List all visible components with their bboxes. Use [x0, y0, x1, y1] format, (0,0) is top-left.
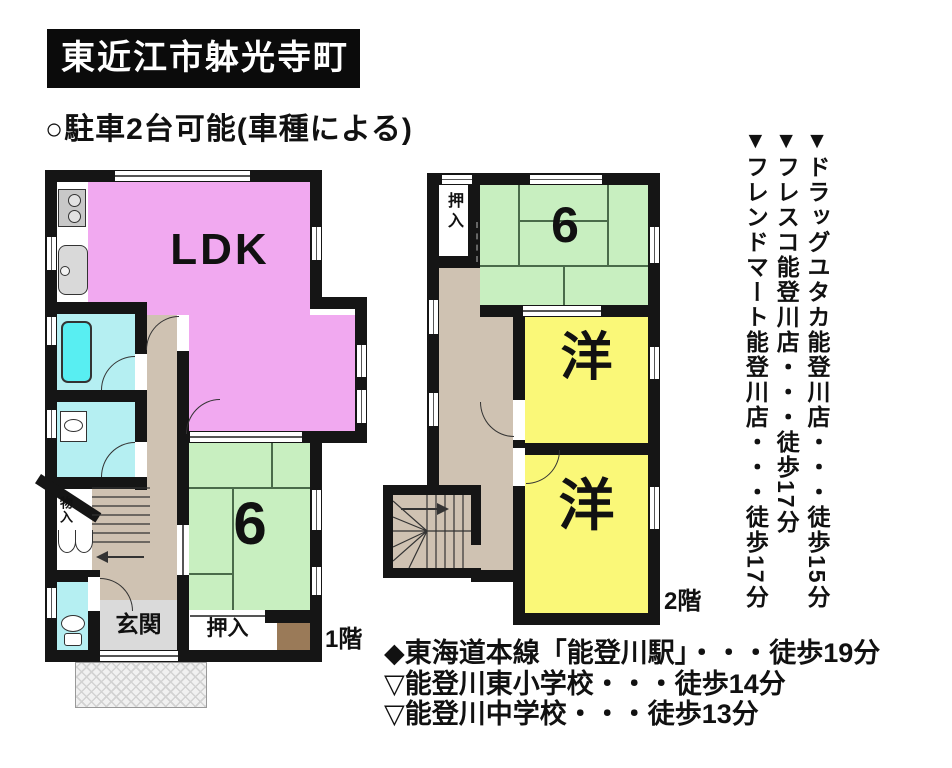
sliding-door	[177, 525, 189, 575]
ldk-label: LDK	[140, 228, 300, 272]
window	[312, 567, 321, 595]
wall	[471, 485, 481, 545]
stairs-1f	[92, 479, 150, 571]
tatami-line	[271, 443, 273, 487]
wall	[310, 431, 322, 662]
wall	[383, 485, 481, 495]
bathtub-icon	[61, 321, 92, 383]
floor1-label: 1階	[325, 628, 362, 652]
closet-opening	[476, 222, 480, 262]
access-info-line: ▽能登川中学校・・・徒歩13分	[384, 699, 880, 730]
nearby-store-item: ▼フレスコ能登川店・・・徒歩17分	[770, 127, 801, 632]
tatami-line	[563, 265, 565, 305]
hallway-2f-top	[439, 268, 480, 317]
wall	[427, 256, 480, 268]
folding-door-arc	[58, 530, 76, 553]
parking-note: ○駐車2台可能(車種による)	[45, 104, 413, 148]
window	[115, 171, 250, 181]
access-info-list: ◆東海道本線「能登川駅」・・・徒歩19分 ▽能登川東小学校・・・徒歩14分 ▽能…	[384, 638, 880, 730]
wall	[45, 390, 145, 402]
wall	[513, 613, 660, 625]
alcove-brown	[277, 621, 310, 652]
vanity-bowl-icon	[64, 419, 83, 432]
toilet-icon	[61, 615, 85, 632]
door-gap	[135, 442, 147, 477]
western-room-label: 洋	[525, 332, 648, 384]
door-gap	[513, 448, 525, 486]
stairs-2f	[393, 495, 471, 568]
sliding-door	[523, 306, 601, 316]
door-gap	[513, 400, 525, 440]
wall	[177, 600, 189, 662]
tatami-line	[607, 185, 609, 265]
window	[650, 347, 659, 379]
window	[530, 175, 602, 184]
window	[312, 227, 321, 260]
window	[442, 175, 472, 184]
window	[47, 588, 56, 618]
property-title: 東近江市躰光寺町	[61, 39, 349, 77]
window	[47, 410, 56, 438]
floor2-label: 2階	[664, 590, 701, 614]
window	[650, 227, 659, 263]
oshiire-label: 押入	[445, 192, 461, 232]
access-info-line: ◆東海道本線「能登川駅」・・・徒歩19分	[384, 638, 880, 669]
entrance-label: 玄関	[100, 613, 177, 636]
toilet-tank-icon	[64, 633, 82, 646]
nearby-store-item: ▼フレンドマート能登川店・・・徒歩17分	[740, 127, 771, 632]
stove-burner-icon	[68, 210, 81, 223]
tatami-size-label: 6	[200, 494, 300, 554]
faucet-icon	[60, 266, 70, 276]
folding-door-arc	[75, 530, 93, 553]
stairs-arrow-icon	[96, 551, 108, 563]
window	[47, 317, 56, 345]
wall	[265, 610, 322, 623]
entrance-door	[100, 651, 178, 661]
property-title-banner: 東近江市躰光寺町	[47, 29, 360, 88]
window	[312, 490, 321, 530]
wall	[45, 302, 145, 314]
tatami-line	[518, 185, 520, 265]
western-room-label: 洋	[525, 478, 648, 534]
nearby-store-item: ▼ドラッグユタカ能登川店・・・徒歩15分	[801, 127, 832, 632]
window	[429, 393, 438, 426]
floorplan-flyer: 東近江市躰光寺町 ○駐車2台可能(車種による)	[0, 0, 952, 768]
wall	[383, 568, 481, 578]
oshiire-label: 押入	[190, 618, 265, 639]
tatami-line	[189, 487, 310, 489]
entrance-porch	[75, 662, 207, 708]
nearby-stores-list: ▼ドラッグユタカ能登川店・・・徒歩15分 ▼フレスコ能登川店・・・徒歩17分 ▼…	[712, 127, 832, 632]
door-gap	[88, 577, 100, 611]
tatami-size-label: 6	[530, 200, 600, 250]
access-info-line: ▽能登川東小学校・・・徒歩14分	[384, 669, 880, 700]
stairs-arrow-icon	[437, 503, 449, 515]
window	[47, 237, 56, 270]
tatami-line	[189, 573, 232, 575]
stove-burner-icon	[68, 194, 81, 207]
door-gap	[135, 354, 147, 390]
window	[650, 487, 659, 529]
monoire-label: 物入	[59, 496, 72, 524]
window	[429, 300, 438, 334]
window	[357, 345, 366, 377]
wall	[383, 485, 393, 578]
window	[357, 390, 366, 423]
